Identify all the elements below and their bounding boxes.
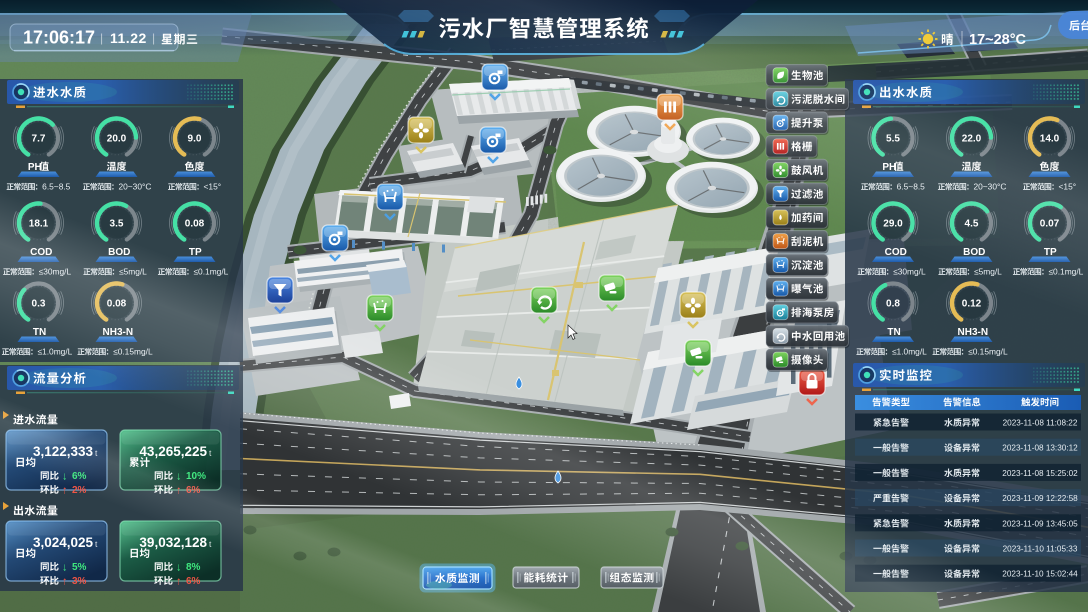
- svg-text:39,032,128: 39,032,128: [139, 535, 207, 550]
- svg-text:≤1.0mg/L: ≤1.0mg/L: [892, 347, 927, 357]
- svg-text:↑: ↑: [62, 576, 68, 588]
- svg-text:|: |: [152, 31, 155, 45]
- svg-text:TN: TN: [887, 327, 900, 338]
- svg-text:20.0: 20.0: [107, 134, 127, 145]
- svg-text:17:06:17: 17:06:17: [23, 28, 95, 48]
- svg-text:17~28°C: 17~28°C: [969, 32, 1027, 48]
- svg-text:2023-11-10 11:05:33: 2023-11-10 11:05:33: [1003, 545, 1078, 554]
- svg-text:↑: ↑: [62, 485, 68, 497]
- svg-text:NH3-N: NH3-N: [958, 327, 989, 338]
- svg-text:20~30°C: 20~30°C: [118, 182, 151, 192]
- svg-text:PH: PH: [28, 162, 42, 173]
- svg-text:11.22: 11.22: [110, 30, 147, 46]
- svg-text:8%: 8%: [186, 562, 201, 573]
- svg-text:2023-11-10 15:02:44: 2023-11-10 15:02:44: [1002, 570, 1078, 579]
- svg-text:5%: 5%: [72, 562, 87, 573]
- svg-text:3,024,025: 3,024,025: [33, 535, 94, 550]
- svg-text:6%: 6%: [186, 576, 201, 587]
- svg-text:0.08: 0.08: [185, 219, 205, 230]
- svg-text:9.0: 9.0: [188, 134, 202, 145]
- svg-text:≤30mg/L: ≤30mg/L: [893, 267, 926, 277]
- svg-text:↑: ↑: [176, 576, 182, 588]
- svg-text:≤0.15mg/L: ≤0.15mg/L: [968, 347, 1008, 357]
- svg-text:↓: ↓: [176, 562, 182, 574]
- svg-text:0.12: 0.12: [962, 299, 982, 310]
- svg-text:2023-11-08 15:25:02: 2023-11-08 15:25:02: [1002, 469, 1078, 478]
- svg-text:3.5: 3.5: [110, 219, 124, 230]
- svg-text:3%: 3%: [72, 576, 87, 587]
- svg-text:0.8: 0.8: [886, 299, 900, 310]
- svg-text:6.5~8.5: 6.5~8.5: [42, 182, 71, 192]
- svg-text:2023-11-08 11:08:22: 2023-11-08 11:08:22: [1003, 419, 1078, 428]
- svg-text:↓: ↓: [62, 562, 68, 574]
- svg-text:2023-11-08 13:30:12: 2023-11-08 13:30:12: [1002, 444, 1078, 453]
- svg-text:TP: TP: [189, 247, 202, 258]
- svg-text:2023-11-09 13:45:05: 2023-11-09 13:45:05: [1002, 519, 1078, 528]
- svg-text:7.7: 7.7: [32, 134, 46, 145]
- svg-text:2023-11-09 12:22:58: 2023-11-09 12:22:58: [1002, 494, 1078, 503]
- svg-text:<15°: <15°: [204, 182, 222, 192]
- svg-text:|: |: [100, 31, 103, 45]
